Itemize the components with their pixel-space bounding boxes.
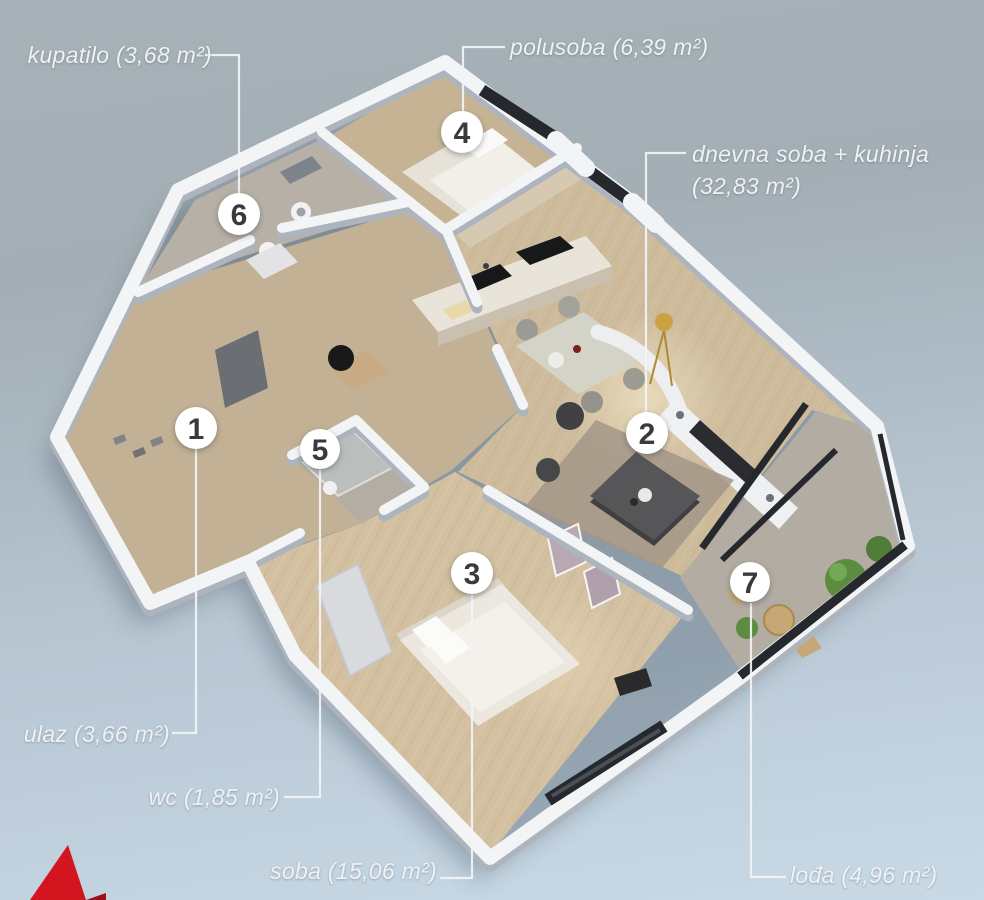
annotations-layer: 6421537 xyxy=(0,0,984,900)
polusoba-label: polusoba (6,39 m²) xyxy=(510,31,708,63)
soba-marker-number: 3 xyxy=(464,558,481,591)
ulaz-label: ulaz (3,66 m²) xyxy=(24,718,170,750)
lodja-marker[interactable]: 7 xyxy=(730,562,770,602)
polusoba-marker-number: 4 xyxy=(454,117,471,150)
wc-label: wc (1,85 m²) xyxy=(149,781,280,813)
soba-leader-line xyxy=(440,595,472,878)
kupatilo-leader-line xyxy=(205,55,239,193)
polusoba-marker[interactable]: 4 xyxy=(441,111,483,153)
kupatilo-label: kupatilo (3,68 m²) xyxy=(28,39,212,71)
kupatilo-marker[interactable]: 6 xyxy=(218,193,260,235)
dnevna-soba-kuhinja-label: dnevna soba + kuhinja (32,83 m²) xyxy=(692,138,929,202)
lodja-marker-number: 7 xyxy=(742,567,759,600)
wc-marker[interactable]: 5 xyxy=(300,429,340,469)
ulaz-marker-number: 1 xyxy=(188,413,205,446)
kupatilo-marker-number: 6 xyxy=(231,199,248,232)
wc-marker-number: 5 xyxy=(312,434,329,467)
dnevna-soba-kuhinja-leader-line xyxy=(646,153,686,412)
ulaz-marker[interactable]: 1 xyxy=(175,407,217,449)
wc-leader-line xyxy=(284,470,320,797)
ulaz-leader-line xyxy=(172,449,196,733)
soba-marker[interactable]: 3 xyxy=(451,552,493,594)
soba-label: soba (15,06 m²) xyxy=(270,855,437,887)
floor-plan-scene: 6421537 kupatilo (3,68 m²)polusoba (6,39… xyxy=(0,0,984,900)
polusoba-leader-line xyxy=(463,47,505,111)
dnevna-soba-kuhinja-marker-number: 2 xyxy=(639,418,656,451)
lodja-leader-line xyxy=(751,603,786,877)
dnevna-soba-kuhinja-marker[interactable]: 2 xyxy=(626,412,668,454)
lodja-label: lođa (4,96 m²) xyxy=(790,859,937,891)
